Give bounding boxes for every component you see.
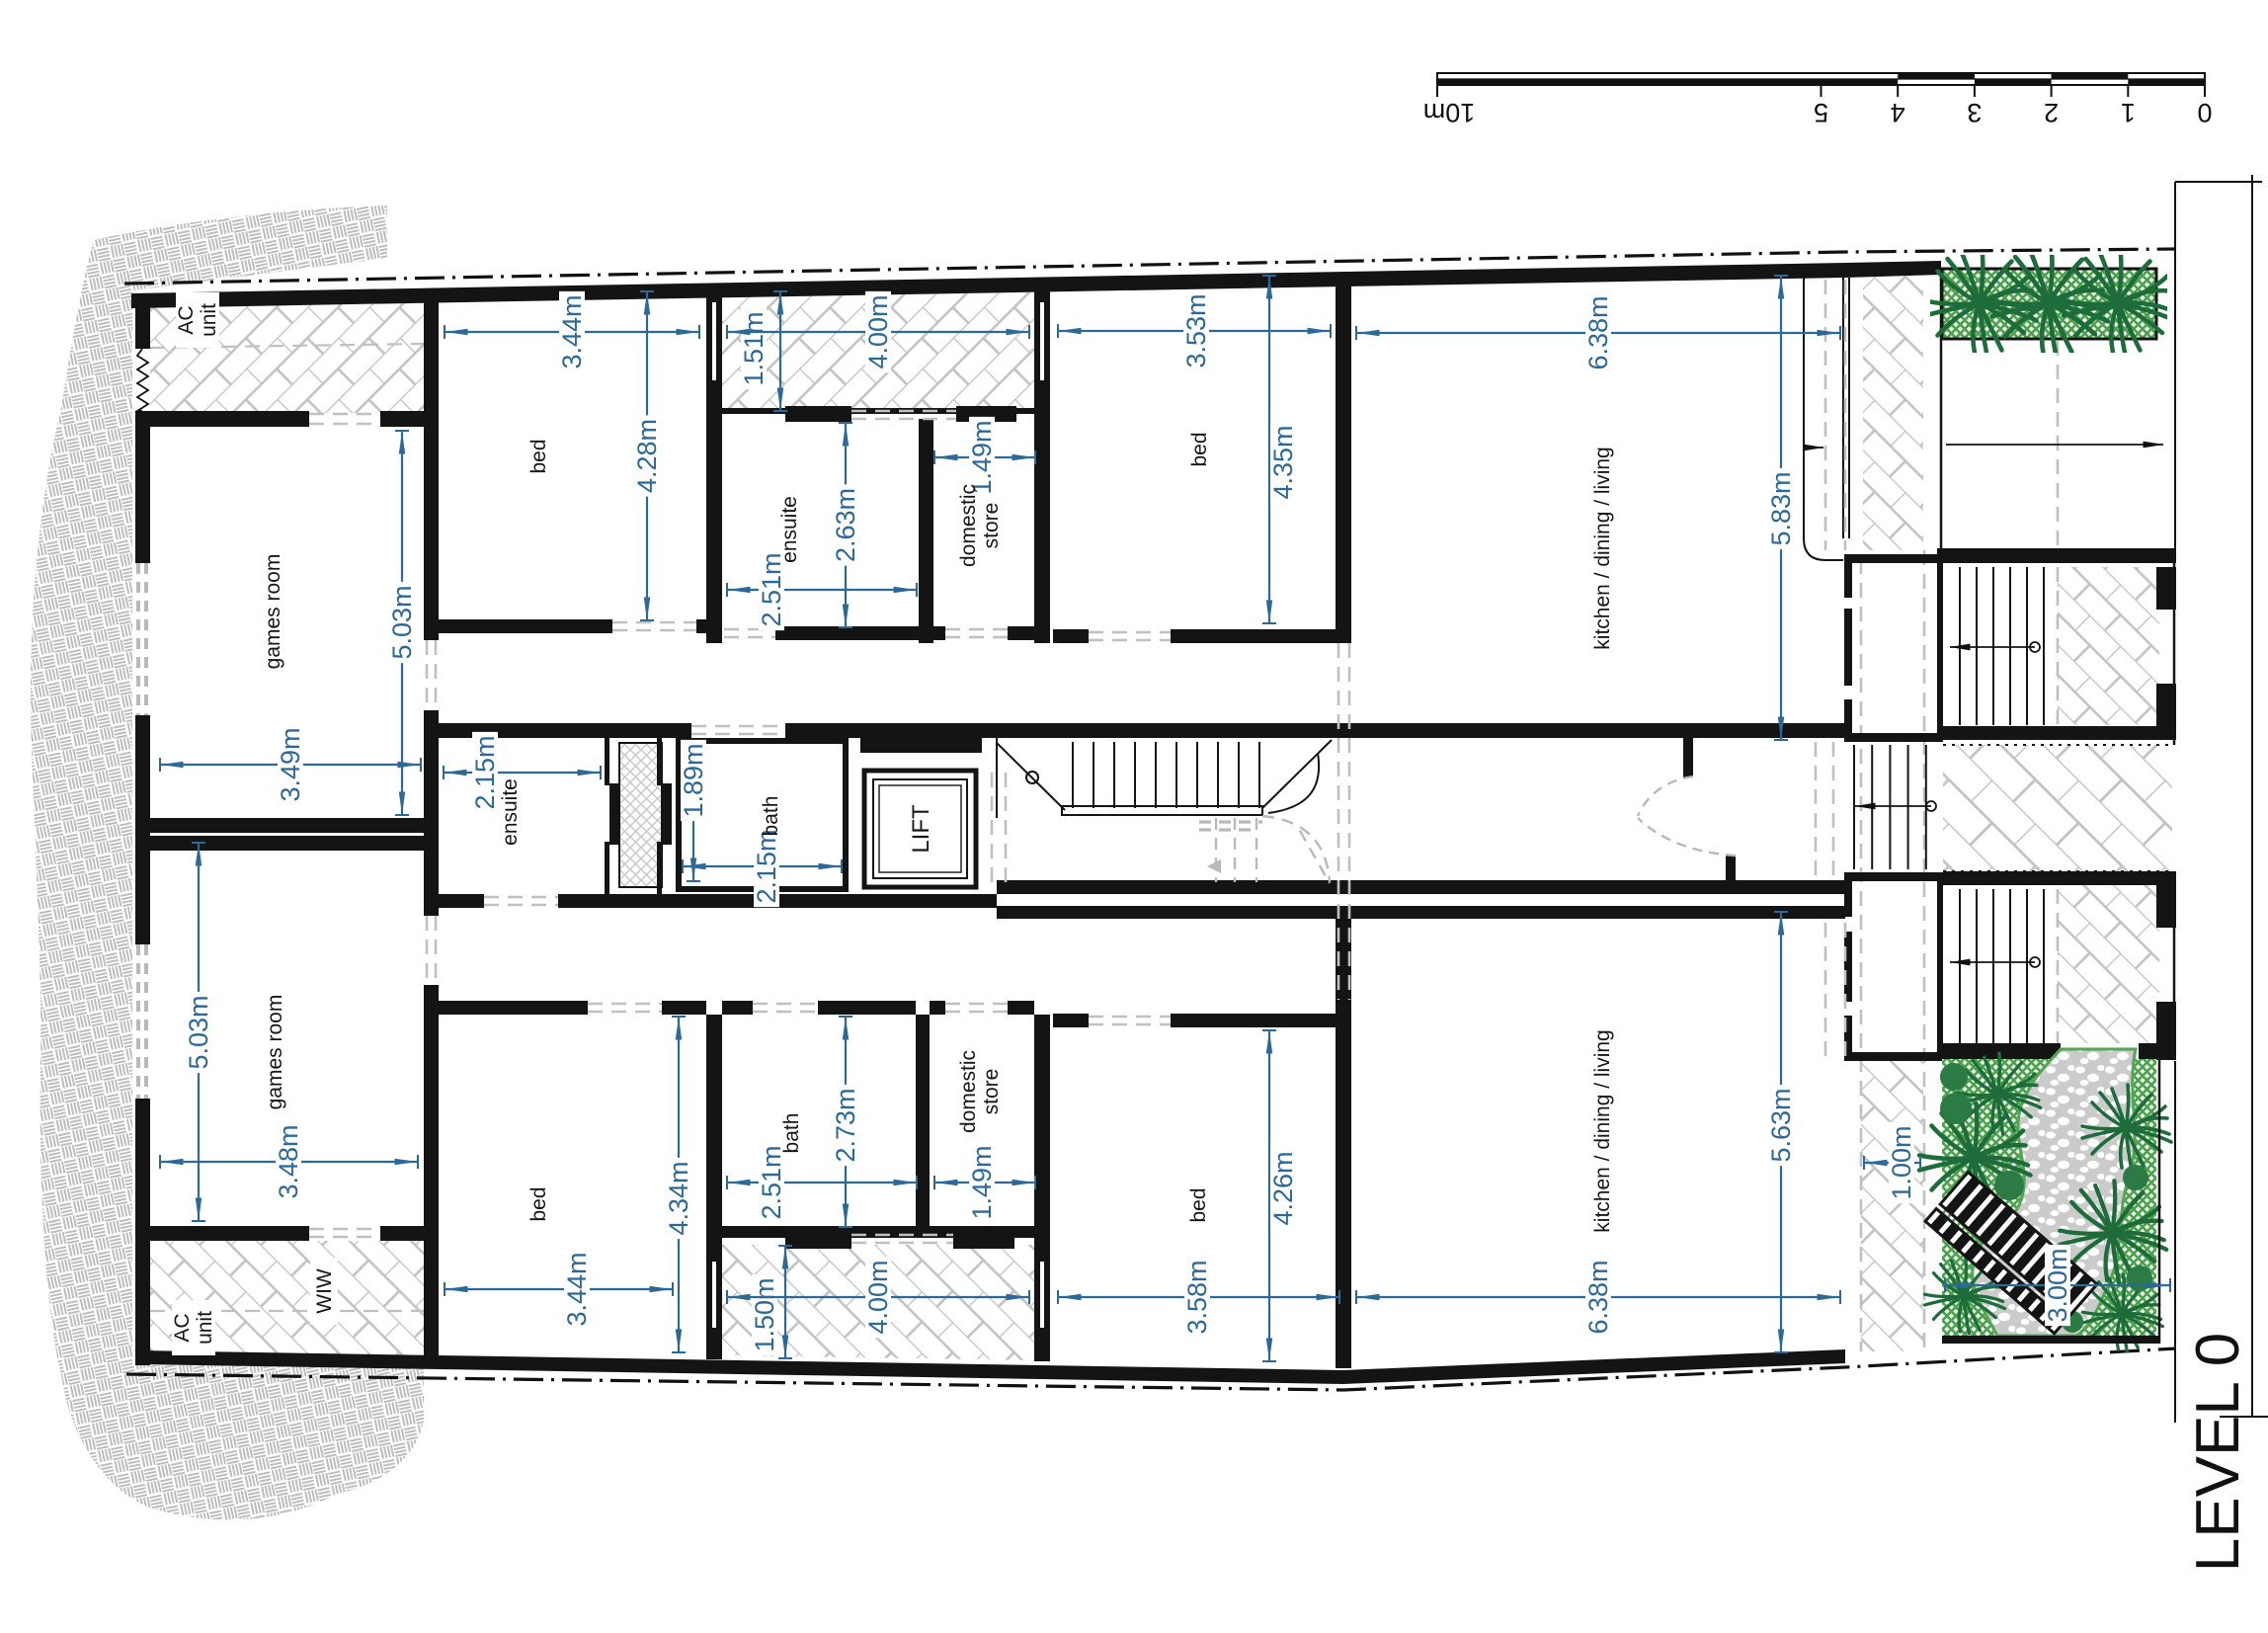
svg-text:ensuite: ensuite <box>499 778 522 846</box>
svg-text:4.00m: 4.00m <box>863 1260 893 1334</box>
svg-text:1.49m: 1.49m <box>967 420 997 494</box>
svg-text:1.50m: 1.50m <box>750 1277 779 1351</box>
svg-text:kitchen / dining / living: kitchen / dining / living <box>1591 1029 1614 1232</box>
svg-text:0: 0 <box>2197 98 2212 127</box>
svg-text:4.28m: 4.28m <box>632 419 662 493</box>
svg-text:1: 1 <box>2121 98 2136 127</box>
svg-text:bath: bath <box>760 796 782 837</box>
svg-text:bed: bed <box>527 439 550 473</box>
svg-text:5.03m: 5.03m <box>184 995 213 1069</box>
svg-text:5: 5 <box>1814 98 1828 127</box>
svg-text:games room: games room <box>262 554 284 670</box>
svg-text:bath: bath <box>780 1113 803 1154</box>
svg-text:ACunit: ACunit <box>171 1311 216 1345</box>
svg-text:4.35m: 4.35m <box>1268 425 1298 499</box>
svg-text:3.49m: 3.49m <box>276 727 305 801</box>
svg-text:4.26m: 4.26m <box>1268 1151 1298 1225</box>
svg-text:3.44m: 3.44m <box>557 294 587 368</box>
svg-text:5.63m: 5.63m <box>1766 1088 1796 1162</box>
svg-text:5.03m: 5.03m <box>387 585 417 659</box>
svg-text:games room: games room <box>264 995 286 1110</box>
svg-text:5.83m: 5.83m <box>1766 471 1796 545</box>
svg-text:3.00m: 3.00m <box>2043 1248 2072 1322</box>
svg-text:4.34m: 4.34m <box>664 1161 693 1235</box>
svg-text:10m: 10m <box>1423 98 1476 127</box>
svg-text:4.00m: 4.00m <box>863 294 893 368</box>
svg-text:1.00m: 1.00m <box>1887 1125 1916 1199</box>
svg-text:3.48m: 3.48m <box>274 1124 303 1198</box>
svg-text:ensuite: ensuite <box>778 496 801 563</box>
svg-text:3.58m: 3.58m <box>1182 1260 1212 1334</box>
svg-text:6.38m: 6.38m <box>1583 1260 1613 1334</box>
svg-text:2.15m: 2.15m <box>470 735 500 809</box>
svg-text:ACunit: ACunit <box>175 303 220 337</box>
svg-text:2: 2 <box>2044 98 2059 127</box>
svg-text:2.63m: 2.63m <box>831 488 860 562</box>
svg-text:4: 4 <box>1891 98 1905 127</box>
svg-text:LIFT: LIFT <box>908 804 934 854</box>
svg-text:2.73m: 2.73m <box>831 1088 860 1162</box>
svg-text:LEVEL 0: LEVEL 0 <box>2184 1333 2252 1572</box>
svg-text:2.51m: 2.51m <box>757 1145 786 1219</box>
svg-text:1.89m: 1.89m <box>679 743 708 817</box>
svg-text:1.49m: 1.49m <box>967 1145 997 1219</box>
svg-text:6.38m: 6.38m <box>1583 295 1613 369</box>
svg-text:WIW: WIW <box>313 1268 336 1314</box>
svg-text:bed: bed <box>1188 432 1211 466</box>
svg-text:kitchen / dining / living: kitchen / dining / living <box>1591 447 1614 649</box>
svg-text:3.53m: 3.53m <box>1181 293 1211 367</box>
svg-text:bed: bed <box>527 1186 550 1221</box>
svg-text:2.15m: 2.15m <box>752 829 781 903</box>
svg-text:1.51m: 1.51m <box>739 311 769 385</box>
svg-text:bed: bed <box>1187 1187 1210 1222</box>
svg-text:3.44m: 3.44m <box>562 1252 592 1326</box>
svg-text:3: 3 <box>1967 98 1982 127</box>
